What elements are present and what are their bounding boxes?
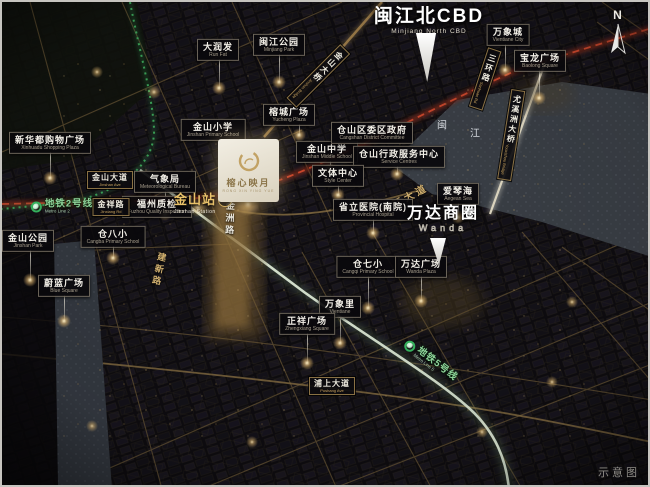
location-dot: [498, 63, 512, 77]
poi-baolong-square: 宝龙广场Baolong Square: [514, 50, 566, 72]
big-label-zh: 闽江北CBD: [374, 1, 484, 28]
poi-jinshan-park: 金山公园Jinshan Park: [2, 230, 54, 252]
label-metro-line-5: 地铁5号线Metro Line 5: [401, 337, 459, 387]
big-label-en: Wanda: [407, 223, 479, 233]
location-map: 榕心映月 RONG XIN YING YUE 金山站2 Jinshan Stat…: [0, 0, 650, 487]
label-metro-line-2: 地铁2号线Metro Line 2: [31, 200, 93, 215]
road-jianxin-rd: 建新路: [149, 251, 169, 289]
poi-wanxiang-city: 万象城Vientiane City: [487, 24, 530, 46]
poi-label-en: Run Fat: [203, 53, 233, 59]
poi-label-en: Wanda Plaza: [401, 270, 441, 276]
metro-text: 地铁5号线Metro Line 5: [412, 346, 459, 388]
road-label-en: Youxizhou Bridge: [500, 144, 509, 175]
location-dot: [300, 356, 314, 370]
location-dot: [272, 75, 286, 89]
station-name-en: Jinshan Station: [174, 209, 232, 215]
poi-blue-square: 蔚蓝广场Blue Square: [38, 275, 90, 297]
location-dot: [366, 226, 380, 240]
poi-label-en: Zhengxiang Square: [285, 327, 329, 333]
road-label-zh: 尤溪洲大桥: [505, 94, 522, 145]
poi-provincial-hospital: 省立医院(南院)Provincial Hospital: [333, 199, 413, 221]
location-dot: [390, 167, 404, 181]
location-dot: [361, 301, 375, 315]
road-sanhuan-rd: 三环路Sanhuan Rd: [469, 47, 501, 110]
poi-admin-service-center: 仓山行政服务中心Service Centres: [353, 146, 445, 168]
poi-label-en: Cangqi Primary School: [342, 270, 393, 276]
poi-label-en: Xinhuadu Shopping Plaza: [15, 146, 85, 152]
big-label-minjiang-north-cbd: 闽江北CBDMinjiang North CBD: [374, 1, 484, 35]
location-dot: [57, 314, 71, 328]
project-logo-card: 榕心映月 RONG XIN YING YUE: [218, 139, 279, 202]
poi-label-en: Provincial Hospital: [339, 213, 407, 219]
project-name: 榕心映月: [226, 176, 270, 189]
poi-jinshan-primary: 金山小学Jinshan Primary School: [181, 119, 246, 141]
poi-rongcheng-plaza: 榕城广场Yucheng Plaza: [263, 104, 315, 126]
location-dot: [23, 273, 37, 287]
poi-xinhuadu-plaza: 新华都购物广场Xinhuadu Shopping Plaza: [9, 132, 91, 154]
metro-label-en: Metro Line 2: [45, 210, 93, 215]
road-label-en: Pushang Ave: [314, 389, 350, 393]
metro-logo-icon: [31, 202, 42, 213]
location-dot: [43, 171, 57, 185]
poi-zhengxiang-square: 正祥广场Zhengxiang Square: [279, 313, 335, 335]
poi-jinshan-middle: 金山中学Jinshan Middle School: [296, 141, 358, 163]
poi-minjiang-park: 闽江公园Minjiang Park: [253, 34, 305, 56]
location-dot: [333, 336, 347, 350]
map-caption: 示意图: [598, 464, 640, 480]
poi-label-en: Baolong Square: [520, 64, 560, 70]
big-label-wanda-circle: 万达商圈Wanda: [407, 199, 479, 233]
compass-n-label: N: [603, 8, 633, 22]
poi-label-en: Cangba Primary School: [87, 240, 140, 246]
poi-cangba-primary: 仓八小Cangba Primary School: [81, 226, 146, 248]
poi-cangshan-committee: 仓山区委区政府Cangshan District Committee: [331, 122, 413, 144]
road-pushang-ave: 浦上大道Pushang Ave: [309, 377, 355, 395]
poi-darunfa: 大润发Run Fat: [197, 39, 239, 61]
poi-label-en: Jinshan Park: [8, 244, 48, 250]
road-label-en: Jinxiang Rd: [98, 210, 125, 214]
road-label-en: Sanhuan Rd: [472, 81, 483, 104]
station-name: 金山站: [174, 192, 216, 207]
compass-needle-icon: [605, 22, 631, 60]
poi-label-en: Jinshan Middle School: [302, 155, 352, 161]
poi-label-en: Jinshan Primary School: [187, 133, 240, 139]
project-name-en: RONG XIN YING YUE: [223, 189, 275, 193]
big-label-zh: 万达商圈: [407, 199, 479, 223]
road-jinxiang-rd: 金祥路Jinxiang Rd: [93, 198, 130, 216]
poi-style-center: 文体中心Style Center: [312, 165, 364, 187]
poi-label-en: Cangshan District Committee: [337, 136, 407, 142]
location-dot: [106, 251, 120, 265]
river-name-char: 闽: [437, 117, 447, 132]
location-dot: [212, 81, 226, 95]
poi-label-en: Service Centres: [359, 160, 439, 166]
location-dot: [532, 91, 546, 105]
poi-label-en: Minjiang Park: [259, 48, 299, 54]
road-label-en: Jinshan Bridge: [291, 77, 313, 99]
metro-text: 地铁2号线Metro Line 2: [45, 200, 93, 215]
poi-label-en: Vientiane City: [493, 38, 524, 44]
river-name-char: 江: [470, 125, 480, 140]
location-dot: [414, 294, 428, 308]
poi-cangqi-primary: 仓七小Cangqi Primary School: [336, 256, 399, 278]
poi-label-en: Yucheng Plaza: [269, 118, 309, 124]
road-jinshan-ave: 金山大道Jinshan Ave: [87, 171, 133, 189]
poi-label-en: Style Center: [318, 179, 358, 185]
poi-label-en: Blue Square: [44, 289, 84, 295]
labels-layer: 榕心映月 RONG XIN YING YUE 金山站2 Jinshan Stat…: [2, 2, 648, 485]
pointer-arrow-minjiang-north-cbd: [414, 33, 438, 82]
road-label-zh: 金山大桥: [310, 49, 345, 84]
project-logo-icon: [236, 149, 262, 175]
compass: N: [603, 8, 633, 65]
road-label-en: Jinshan Ave: [92, 183, 128, 187]
road-label-zh: 三环路: [479, 53, 497, 84]
road-youxizhou-bridge: 尤溪洲大桥Youxizhou Bridge: [497, 89, 525, 181]
